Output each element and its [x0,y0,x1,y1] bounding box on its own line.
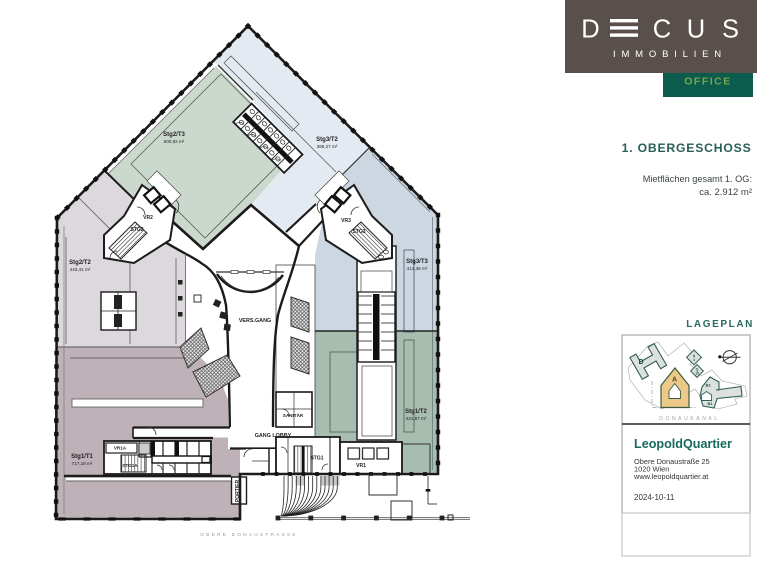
svg-text:SANITÄR: SANITÄR [283,412,304,418]
svg-text:D: D [638,359,643,366]
svg-text:www.leopoldquartier.at: www.leopoldquartier.at [633,472,708,481]
svg-text:2024-10-11: 2024-10-11 [634,493,675,502]
svg-text:D: D [581,15,599,43]
svg-text:STG1A: STG1A [122,463,138,468]
svg-text:1. OBERGESCHOSS: 1. OBERGESCHOSS [622,141,752,155]
svg-text:Stg2/T3: Stg2/T3 [163,132,185,138]
svg-text:VR1: VR1 [356,463,366,469]
svg-text:413,38 m²: 413,38 m² [407,266,428,271]
svg-text:Stg3/T2: Stg3/T2 [316,137,338,143]
svg-text:LAGEPLAN: LAGEPLAN [686,319,754,330]
svg-text:717,18 m²: 717,18 m² [72,461,93,466]
svg-text:VERS.GANG: VERS.GANG [239,318,271,324]
svg-text:15: 15 [695,372,699,376]
svg-text:LeopoldQuartier: LeopoldQuartier [634,437,732,451]
svg-text:VR1A: VR1A [114,446,127,451]
svg-text:600,92 m²: 600,92 m² [164,139,185,144]
svg-text:368,27 m²: 368,27 m² [317,144,338,149]
svg-text:A: A [672,377,677,384]
svg-text:GANG LOBBY: GANG LOBBY [255,433,292,439]
svg-text:Stg1/T2: Stg1/T2 [405,409,427,415]
svg-text:OFFICE: OFFICE [684,76,732,88]
svg-text:443,41 m²: 443,41 m² [70,267,91,272]
svg-text:B2: B2 [705,383,711,388]
svg-text:OBERE DONAUSTRASSE: OBERE DONAUSTRASSE [200,532,297,538]
svg-text:Stg2/T2: Stg2/T2 [69,260,91,266]
svg-text:Stg3/T3: Stg3/T3 [406,259,428,265]
svg-text:C: C [653,15,671,43]
svg-text:ca. 2.912 m²: ca. 2.912 m² [699,187,752,198]
svg-text:VR3: VR3 [341,218,351,224]
svg-text:U: U [687,15,705,43]
svg-text:421,87 m²: 421,87 m² [406,416,427,421]
svg-text:S: S [722,15,739,43]
svg-text:STG3: STG3 [352,229,365,235]
svg-text:VR2: VR2 [143,215,153,221]
svg-text:Mietflächen gesamt 1. OG:: Mietflächen gesamt 1. OG: [643,174,752,184]
svg-text:PORTIER: PORTIER [235,480,241,503]
svg-text:3: 3 [693,358,695,362]
svg-text:DONAUKANAL: DONAUKANAL [659,416,719,422]
svg-text:STG1: STG1 [310,456,323,462]
svg-text:B1: B1 [707,401,713,406]
svg-text:IMMOBILIEN: IMMOBILIEN [613,49,727,60]
svg-text:STG2: STG2 [130,227,143,233]
svg-text:Stg1/T1: Stg1/T1 [71,454,93,460]
